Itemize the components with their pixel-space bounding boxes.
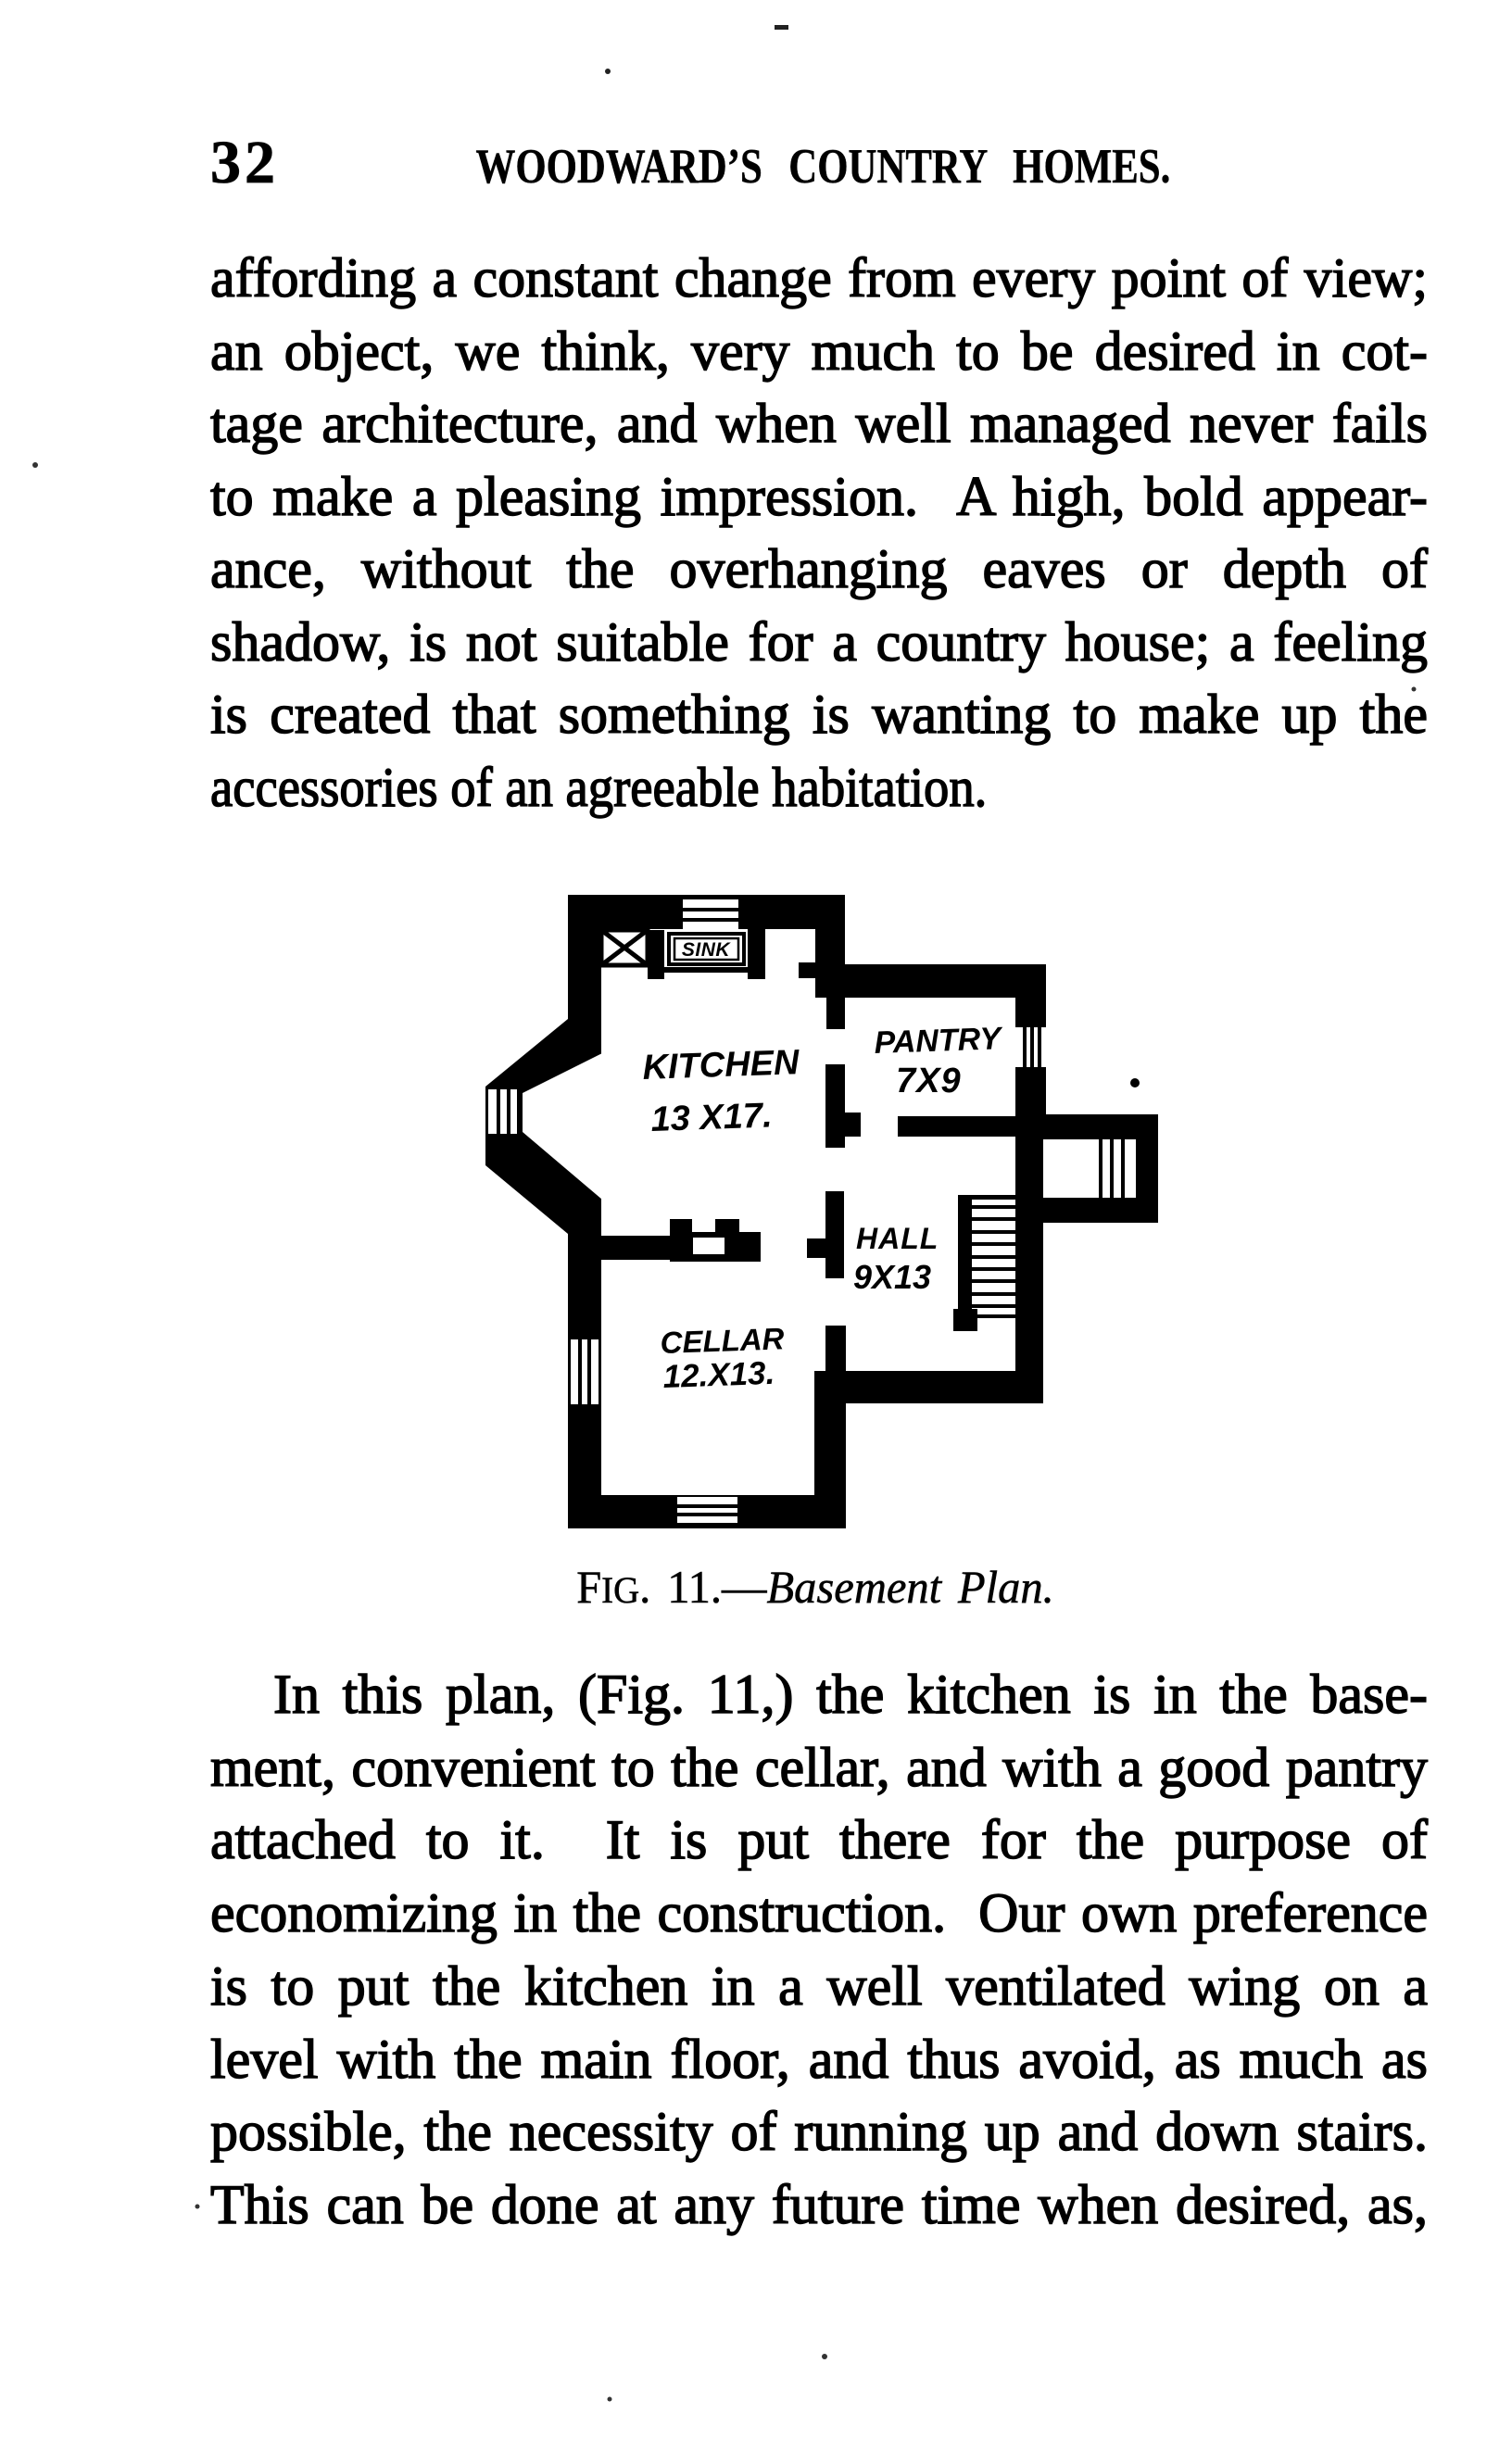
svg-text:7X9: 7X9	[896, 1062, 962, 1100]
svg-text:HALL: HALL	[856, 1222, 939, 1255]
svg-text:CELLAR: CELLAR	[660, 1321, 785, 1360]
svg-text:SINK: SINK	[682, 939, 732, 961]
svg-text:9X13: 9X13	[853, 1258, 931, 1296]
svg-text:13 X17.: 13 X17.	[650, 1096, 773, 1139]
svg-text:12.X13.: 12.X13.	[662, 1355, 775, 1395]
svg-text:PANTRY: PANTRY	[874, 1021, 1004, 1061]
svg-text:KITCHEN: KITCHEN	[642, 1043, 801, 1087]
